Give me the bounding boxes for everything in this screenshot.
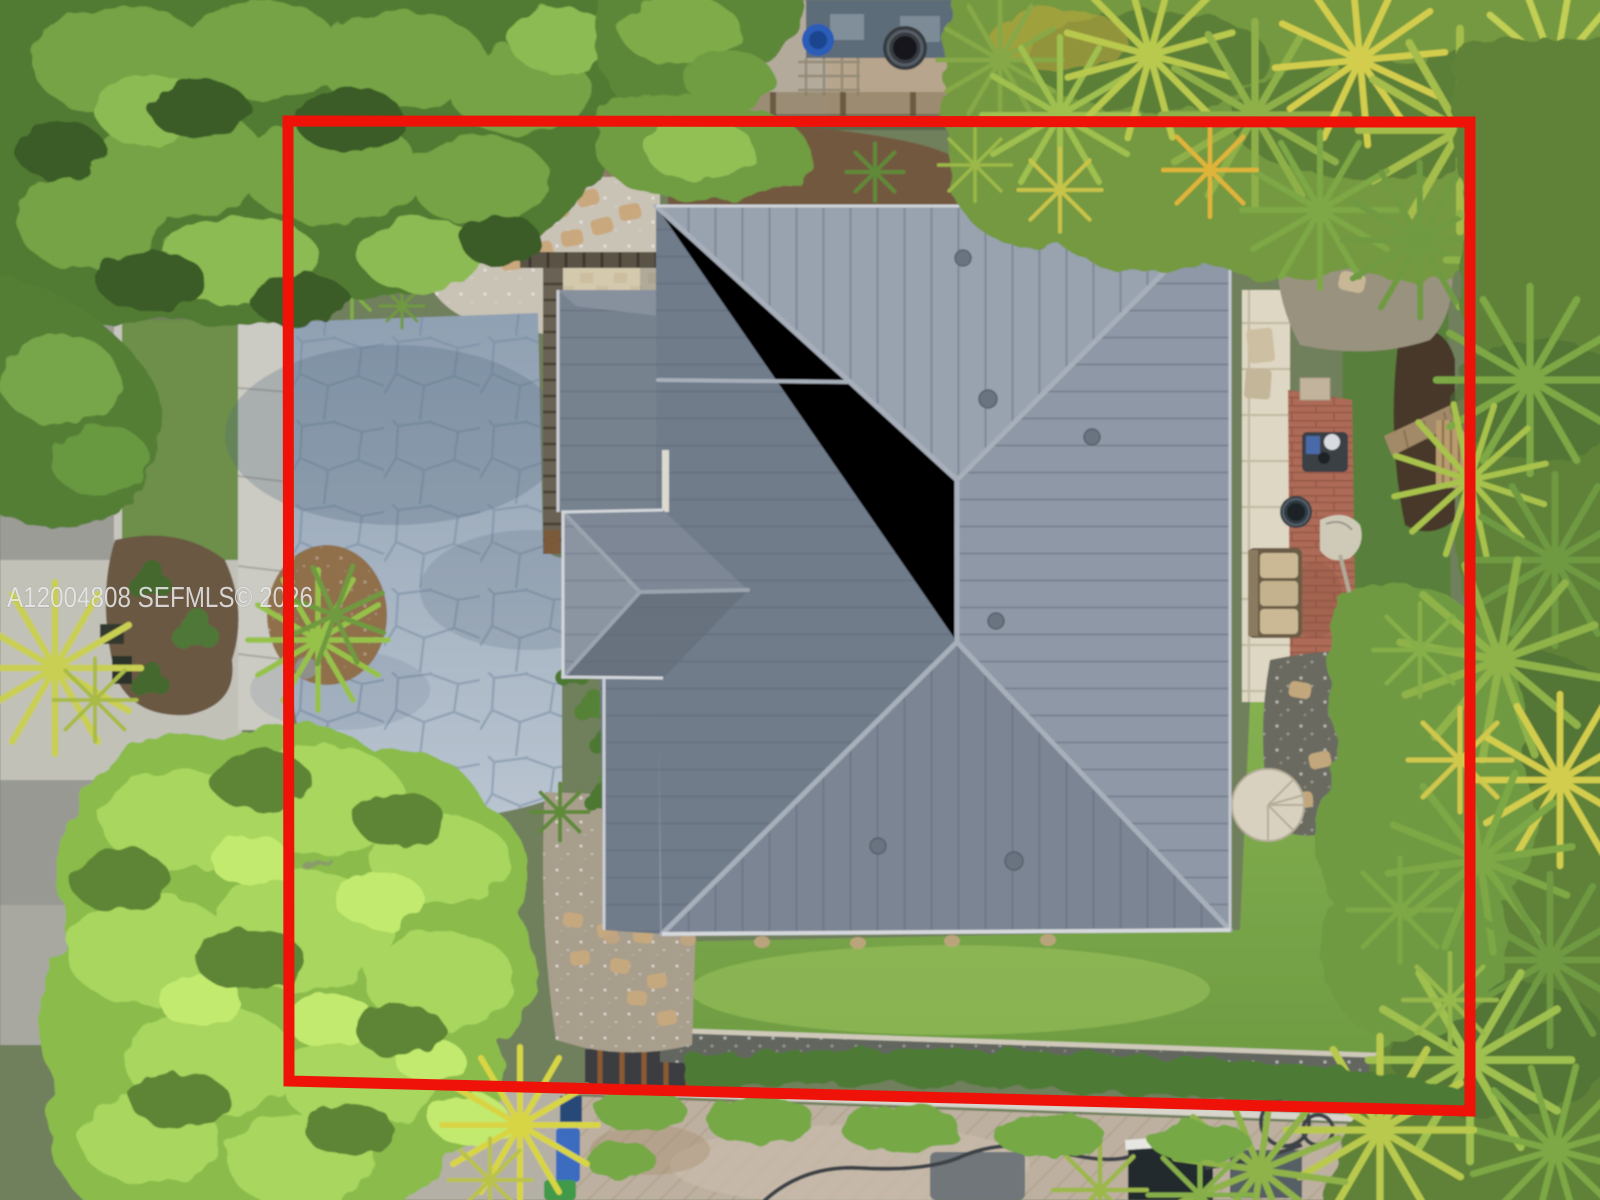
fire-pit [1280, 496, 1312, 528]
watermark-text: A12004808 SEFMLS© 2026 [7, 582, 313, 614]
stone-medallion [1232, 769, 1304, 841]
aerial-photo: A12004808 SEFMLS© 2026 [0, 0, 1600, 1200]
pergola-post [544, 530, 560, 554]
neighbor-window [830, 14, 864, 40]
aerial-photo-canvas: A12004808 SEFMLS© 2026 [0, 0, 1600, 1200]
tree-shadow-on-driveway [225, 345, 565, 525]
main-roof [656, 206, 1230, 936]
side-extension-roof [600, 678, 662, 934]
wall-gap [662, 450, 669, 512]
agave-plant [846, 143, 903, 200]
grill [1302, 432, 1348, 472]
left-wing-roof [558, 290, 658, 512]
paver-stack [1300, 378, 1330, 400]
lawn-light-patch [690, 945, 1210, 1035]
house-roof [558, 206, 1230, 936]
blue-barrel-lid [809, 31, 827, 49]
outdoor-sofa [1248, 548, 1302, 638]
